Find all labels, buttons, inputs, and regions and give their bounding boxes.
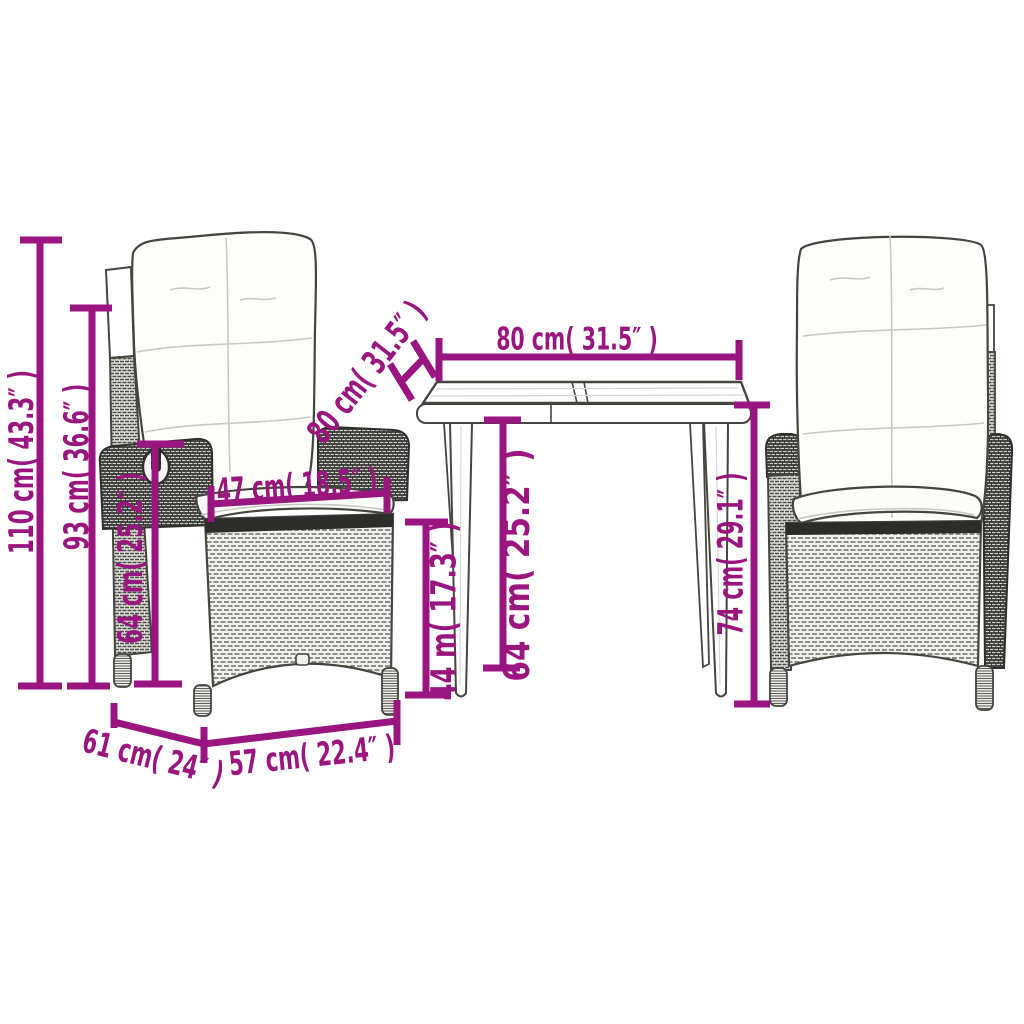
- right-chair-seat-base: [786, 521, 981, 666]
- right-chair-illustration: [766, 236, 1012, 710]
- table-clearance-height-label: 44 m( 17.3″ ): [427, 521, 464, 700]
- seat-base-glide: [296, 654, 309, 665]
- left-chair-front-leg: [194, 685, 211, 716]
- left-chair-back-post-top: [106, 267, 134, 358]
- dining-table-illustration: [417, 382, 751, 697]
- chair-armrest-height-label: 64 cm( 25.2″ ): [114, 472, 150, 644]
- right-chair-right-leg: [976, 666, 993, 710]
- left-chair-rear-leg: [114, 654, 131, 687]
- table-apron: [417, 404, 751, 423]
- table-width-label: 80 cm( 31.5″ ): [496, 324, 658, 357]
- table-height-label: 74 cm( 29.1″ ): [714, 472, 751, 635]
- right-chair-left-armrest: [766, 434, 802, 477]
- chair-back-height-label: 93 cm( 36.6″ ): [60, 384, 96, 551]
- product-dimension-diagram: 110 cm( 43.3″ ) 93 cm( 36.6″ ) 64 cm( 25…: [0, 0, 1024, 1024]
- right-chair-left-leg: [770, 668, 787, 706]
- table-leg-height-label: 64 cm( 25.2″ ): [499, 448, 537, 681]
- seat-base-shadow-band: [786, 521, 981, 535]
- chair-total-height-label: 110 cm( 43.3″ ): [5, 370, 41, 554]
